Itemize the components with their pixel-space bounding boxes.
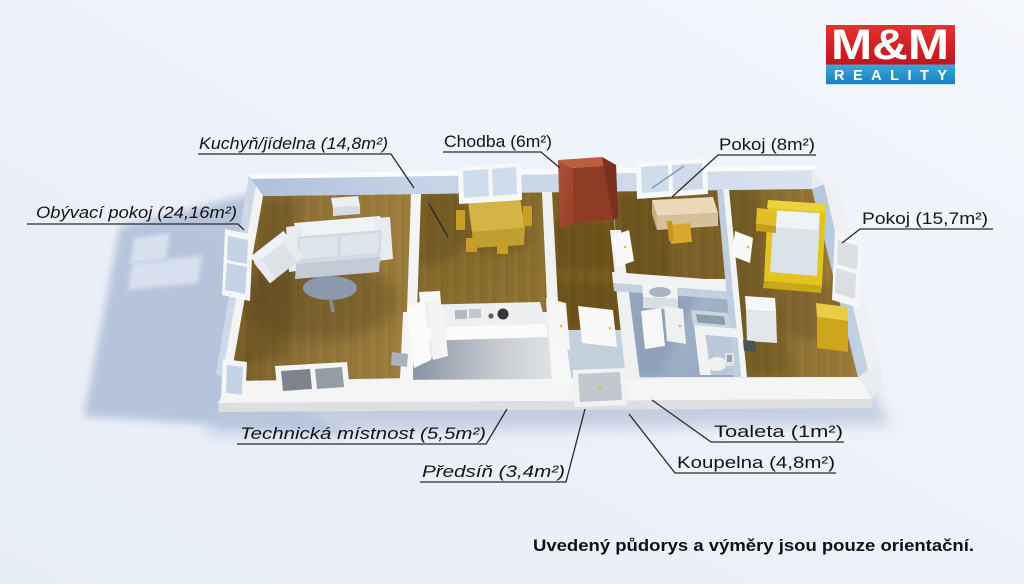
svg-text:Předsíň (3,4m²): Předsíň (3,4m²) — [422, 462, 565, 481]
svg-text:Kuchyň/jídelna (14,8m²): Kuchyň/jídelna (14,8m²) — [199, 134, 388, 153]
svg-text:Obývací pokoj (24,16m²): Obývací pokoj (24,16m²) — [36, 203, 237, 222]
svg-text:Technická místnost (5,5m²): Technická místnost (5,5m²) — [240, 424, 486, 443]
svg-text:Pokoj (8m²): Pokoj (8m²) — [719, 135, 815, 154]
svg-text:Toaleta (1m²): Toaleta (1m²) — [714, 422, 843, 441]
svg-text:Chodba (6m²): Chodba (6m²) — [444, 132, 552, 151]
svg-text:Koupelna (4,8m²): Koupelna (4,8m²) — [677, 453, 835, 472]
svg-text:Pokoj (15,7m²): Pokoj (15,7m²) — [862, 209, 988, 228]
svg-text:Uvedený půdorys a výměry jsou: Uvedený půdorys a výměry jsou pouze orie… — [533, 536, 974, 555]
svg-text:M&M: M&M — [831, 21, 949, 69]
